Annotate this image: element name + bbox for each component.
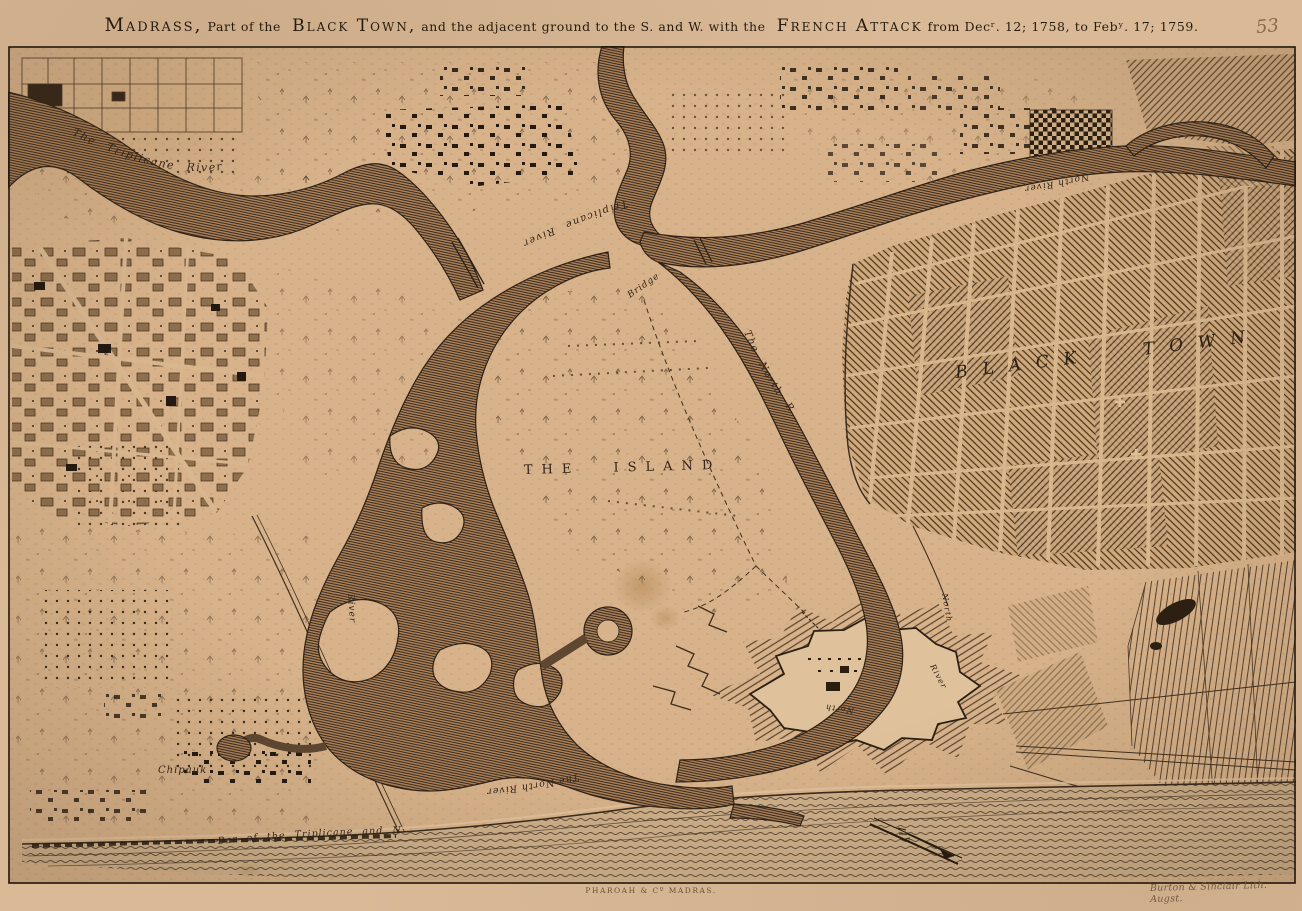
map-sheet: Madrass,Part of the Black Town,and the a… — [0, 0, 1302, 911]
title-french-attack: French Attack — [774, 16, 926, 36]
title-madrass: Madrass, — [101, 14, 205, 36]
map-plate: The Triplicane River Triplicane River Th… — [8, 46, 1296, 884]
title-adjacent: and the adjacent ground to the S. and W.… — [419, 19, 767, 34]
plate-number: 53 — [1255, 15, 1280, 38]
paper-aging — [8, 46, 1296, 884]
title-dates: from Decʳ. 12; 1758, to Febʸ. 17; 1759. — [926, 19, 1201, 34]
imprint-publisher: PHAROAH & Cº MADRAS. — [0, 886, 1302, 895]
title-black-town: Black Town, — [289, 16, 419, 36]
map-title: Madrass,Part of the Black Town,and the a… — [0, 14, 1302, 36]
imprint-lithographer: Burton & Sinclair Lith. Augst. — [1150, 879, 1302, 905]
title-part-of: Part of the — [206, 19, 283, 34]
